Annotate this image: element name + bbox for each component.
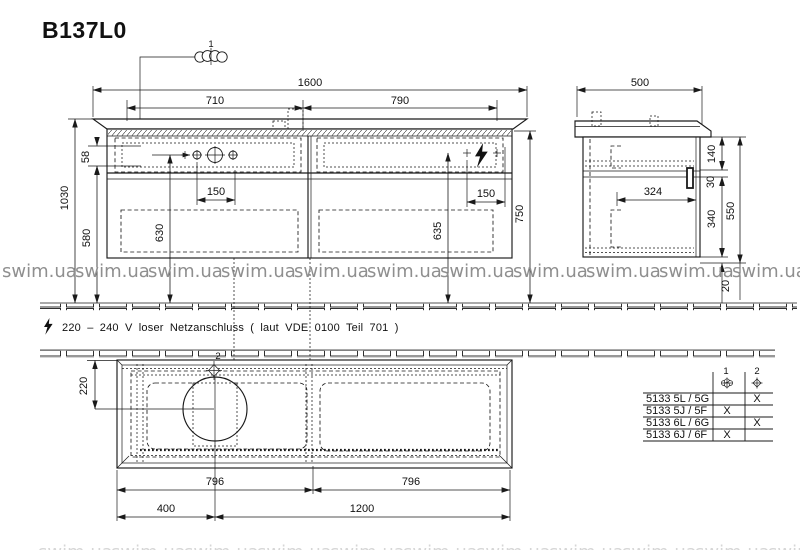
- dim-220: 220: [78, 377, 90, 395]
- dim-710: 710: [206, 95, 224, 107]
- callout-1: 1: [140, 39, 227, 119]
- callout-1-label: 1: [208, 39, 213, 50]
- watermark: swim.ua: [221, 261, 296, 282]
- callout-leader-line: [140, 57, 195, 119]
- dim-1030: 1030: [59, 186, 71, 210]
- watermark: swim.ua: [257, 542, 332, 550]
- watermark: swim.ua: [184, 542, 259, 550]
- plan-outline: [117, 360, 512, 468]
- dim-150-right: 150: [477, 188, 495, 200]
- dim-400: 400: [157, 503, 175, 515]
- dim-140: 140: [706, 145, 718, 163]
- page-title: B137L0: [42, 17, 127, 43]
- cloud-callout-icon: [195, 48, 227, 65]
- table-header-1: 1: [723, 366, 728, 377]
- dim-790: 790: [391, 95, 409, 107]
- watermark: swim.ua: [294, 261, 369, 282]
- watermark: swim.ua: [367, 261, 442, 282]
- watermark: swim.ua: [622, 542, 697, 550]
- dim-796-right: 796: [402, 476, 420, 488]
- dim-324: 324: [644, 186, 662, 198]
- watermark-row-bottom: swim.ua swim.ua swim.ua swim.ua swim.ua …: [38, 542, 800, 550]
- electrical-note: 220 – 240 V loser Netzanschluss ( laut V…: [44, 318, 399, 335]
- watermark: swim.ua: [768, 542, 800, 550]
- cabinet-body-front: [107, 129, 512, 258]
- note-text: 220 – 240 V loser Netzanschluss ( laut V…: [62, 322, 399, 334]
- table-header-2: 2: [754, 366, 759, 377]
- dim-635: 635: [432, 222, 444, 240]
- watermark: swim.ua: [111, 542, 186, 550]
- watermark: swim.ua: [75, 261, 150, 282]
- table-row-model: 5133 5J / 5F: [646, 405, 707, 417]
- watermark: swim.ua: [148, 261, 223, 282]
- watermark: swim.ua: [2, 261, 77, 282]
- dim-1200: 1200: [350, 503, 374, 515]
- floor-hatch-upper: [40, 304, 797, 310]
- watermark: swim.ua: [513, 261, 588, 282]
- dim-30: 30: [705, 176, 717, 188]
- dim-580: 580: [81, 229, 93, 247]
- dim-796-left: 796: [206, 476, 224, 488]
- dim-750: 750: [514, 205, 526, 223]
- dim-630: 630: [154, 224, 166, 242]
- table-row-model: 5133 6J / 6F: [646, 429, 707, 441]
- plan-view: 2: [117, 351, 512, 468]
- countertop-side: [575, 121, 711, 137]
- callout-2-label: 2: [215, 351, 220, 362]
- drawer-handle-profile: [687, 168, 693, 188]
- dim-550: 550: [725, 202, 737, 220]
- watermark: swim.ua: [440, 261, 515, 282]
- dim-58: 58: [80, 151, 92, 163]
- watermark: swim.ua: [695, 542, 770, 550]
- floor-hatch-lower: [40, 351, 775, 357]
- table-row-model: 5133 5L / 5G: [646, 393, 709, 405]
- dim-1600: 1600: [298, 77, 322, 89]
- variant-table: 1 2 5133 5L / 5G 5133 5J / 5F 5133 6L / …: [643, 366, 773, 441]
- dim-340: 340: [706, 210, 718, 228]
- watermark: swim.ua: [403, 542, 478, 550]
- watermark-row-middle: swim.ua swim.ua swim.ua swim.ua swim.ua …: [2, 261, 800, 282]
- watermark: swim.ua: [659, 261, 734, 282]
- countertop-underside-hatch: [108, 130, 511, 136]
- table-cell: X: [723, 429, 731, 441]
- table-header-cloud-icon: [721, 378, 732, 389]
- watermark: swim.ua: [732, 261, 800, 282]
- table-cell: X: [723, 405, 731, 417]
- watermark: swim.ua: [38, 542, 113, 550]
- table-row-model: 5133 6L / 6G: [646, 417, 709, 429]
- watermark: swim.ua: [586, 261, 661, 282]
- table-cell: X: [753, 417, 761, 429]
- lightning-bolt-icon: [44, 318, 53, 335]
- technical-drawing-canvas: B137L0 1: [0, 0, 800, 550]
- watermark: swim.ua: [549, 542, 624, 550]
- watermark: swim.ua: [330, 542, 405, 550]
- table-header-diamond-icon: [752, 378, 763, 389]
- watermark: swim.ua: [476, 542, 551, 550]
- cabinet-body-side: [583, 137, 700, 257]
- dim-500: 500: [631, 77, 649, 89]
- countertop-front: [93, 119, 527, 129]
- table-cell: X: [753, 393, 761, 405]
- dim-150-left: 150: [207, 186, 225, 198]
- vanity-dimension-drawing: B137L0 1: [0, 0, 800, 550]
